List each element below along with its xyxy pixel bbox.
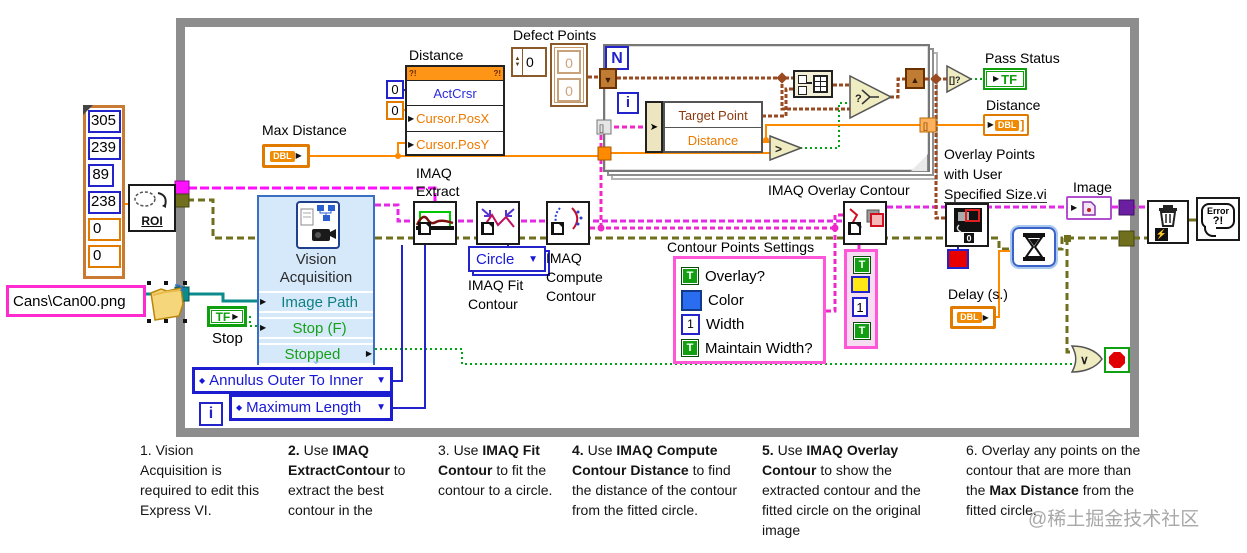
property-node-header: ?! ?!: [407, 67, 503, 81]
prop-glyph-right: ?!: [493, 69, 501, 78]
loop-count-terminal: N: [605, 46, 629, 70]
roi-convert-node[interactable]: ROI: [128, 184, 176, 232]
dbl-type-text: DBL: [957, 312, 982, 323]
posx-constant[interactable]: 0: [386, 101, 404, 120]
defect-points-label: Defect Points: [513, 27, 596, 43]
dbl-type-text: DBL: [270, 151, 295, 162]
va-expand-chevron[interactable]: ⌄: [259, 353, 373, 367]
overlay-points-label-1: Overlay Points: [944, 146, 1035, 162]
defect-points-index[interactable]: ▲ ▼ 0: [511, 47, 547, 77]
settings-row-label: Overlay?: [705, 268, 765, 285]
unbundle-node[interactable]: Target Point Distance: [663, 101, 763, 153]
imaq-extract-contour-node[interactable]: [413, 201, 457, 245]
index-spinner[interactable]: ▲ ▼: [513, 49, 523, 75]
imaq-compute-contour-node[interactable]: [546, 201, 590, 245]
fit-shape-enum[interactable]: Circle ▼: [468, 246, 546, 272]
roi-ellipse-icon: [130, 187, 174, 211]
unbundle-row-distance[interactable]: Distance: [665, 128, 761, 152]
va-row-label: Stop (F): [266, 320, 373, 337]
image-label: Image: [1073, 179, 1112, 195]
va-title-line-2: Acquisition: [259, 269, 373, 286]
svg-text:[]: []: [599, 123, 604, 133]
input-arrow-icon: ▶: [1071, 204, 1077, 212]
roi-value-0[interactable]: 305: [88, 110, 121, 133]
settings-row-label: Color: [708, 292, 744, 309]
svg-text:0: 0: [967, 234, 972, 244]
contour-settings-cluster[interactable]: T Overlay? Color 1 Width T Maintain Widt…: [673, 256, 826, 364]
shift-register-down-icon: ▼: [604, 75, 613, 85]
labview-block-diagram: > ? []? ∨ [] [] 305 239 89 238 0 0 ROI C…: [0, 0, 1247, 553]
settings-row-label: Maintain Width?: [705, 340, 813, 357]
chevron-down-icon[interactable]: ▼: [376, 375, 386, 386]
enum-value: Annulus Outer To Inner: [209, 372, 363, 389]
max-distance-dbl-control[interactable]: DBL ▶: [262, 144, 310, 168]
index-value: 0: [523, 49, 545, 75]
error-bubble-qmarks: ?!: [1203, 216, 1233, 226]
delay-label: Delay (s.): [948, 286, 1008, 302]
overlay-points-vi-node[interactable]: 0: [945, 203, 989, 247]
tf-type-text: TF: [1001, 72, 1017, 87]
array-bracket: ]: [1020, 119, 1024, 131]
max-distance-label: Max Distance: [262, 122, 347, 138]
build-array-node[interactable]: [793, 70, 833, 98]
imaq-overlay-contour-node[interactable]: [843, 201, 887, 245]
array-element-1[interactable]: 0: [557, 78, 581, 102]
distance-array-indicator[interactable]: ▶ DBL ]: [983, 114, 1029, 136]
imaq-dispose-node[interactable]: ⚡: [1147, 200, 1189, 244]
imaq-overlay-contour-label: IMAQ Overlay Contour: [768, 182, 910, 198]
enum-value: Circle: [476, 251, 514, 268]
enum-diamond-icon: ◆: [236, 403, 242, 412]
instruction-2: 2. Use IMAQ ExtractContour to extract th…: [288, 441, 422, 521]
output-arrow-icon: ▶: [983, 314, 989, 322]
va-row-stop[interactable]: ▶ Stop (F): [259, 317, 373, 339]
overlay-color-box[interactable]: [947, 249, 969, 269]
roi-value-1[interactable]: 239: [88, 137, 121, 160]
unbundle-arrow-icon: ➤: [650, 122, 658, 133]
stop-label: Stop: [212, 330, 243, 347]
actcrsr-constant[interactable]: 0: [386, 80, 404, 99]
prop-row-label: ActCrsr: [433, 86, 476, 101]
prop-row-cursorposx[interactable]: ▶ Cursor.PosX: [407, 106, 503, 132]
unbundle-row-target-point[interactable]: Target Point: [665, 103, 761, 128]
chevron-down-icon[interactable]: ▼: [528, 254, 538, 265]
stop-octagon-icon: [1109, 352, 1125, 368]
imaq-compute-label-2: Compute: [546, 269, 603, 285]
va-row-label: Image Path: [266, 294, 373, 311]
build-array-grid-icon: [813, 75, 828, 93]
color-box-yellow[interactable]: [851, 276, 870, 293]
settings-row-maintain[interactable]: T Maintain Width?: [681, 336, 823, 360]
image-indicator[interactable]: ▶: [1066, 196, 1112, 220]
vision-acquisition-icon: [296, 201, 340, 249]
svg-text:[]: []: [923, 121, 928, 131]
array-element-0[interactable]: 0: [557, 50, 581, 74]
dbl-type-text: DBL: [995, 120, 1020, 131]
imaq-fit-label-1: IMAQ Fit: [468, 277, 523, 293]
enum-diamond-icon: ◆: [199, 376, 205, 385]
overlay-points-icon: 0: [947, 205, 987, 245]
settings-row-width[interactable]: 1 Width: [681, 312, 823, 336]
roi-value-2[interactable]: 89: [88, 164, 114, 187]
instruction-3: 3. Use IMAQ Fit Contour to fit the conto…: [438, 441, 576, 501]
shift-register-left[interactable]: ▼: [599, 68, 617, 89]
width-value-box[interactable]: 1: [681, 314, 700, 335]
stop-tf-control[interactable]: TF ▶: [207, 306, 247, 327]
tf-type-text: TF: [216, 310, 231, 324]
loop-iteration-terminal: i: [617, 92, 639, 114]
roi-node-label: ROI: [130, 214, 174, 228]
output-arrow-icon: ▶: [232, 313, 238, 321]
shift-register-up-icon: ▲: [911, 75, 920, 85]
delay-dbl-control[interactable]: DBL ▶: [950, 306, 996, 329]
prop-row-cursorposy[interactable]: ▶ Cursor.PosY: [407, 132, 503, 157]
unbundle-selector[interactable]: ➤: [645, 101, 663, 153]
wait-ms-node[interactable]: [1012, 227, 1056, 267]
roi-value-5[interactable]: 0: [88, 245, 121, 268]
instruction-1: 1. Vision Acquisition is required to edi…: [140, 441, 260, 521]
overlay-points-label-3: Specified Size.vi: [944, 186, 1047, 203]
enum-value: Maximum Length: [246, 399, 361, 416]
pass-status-label: Pass Status: [985, 50, 1060, 66]
imaq-extract-label-2: Extract: [416, 183, 460, 199]
width-value-box[interactable]: 1: [852, 297, 868, 317]
svg-text:>: >: [775, 142, 782, 156]
settings-row-overlay[interactable]: T Overlay?: [681, 264, 823, 288]
settings-row-label: Width: [706, 316, 744, 333]
simple-error-handler-node[interactable]: Error ?!: [1196, 197, 1240, 241]
shift-register-right[interactable]: ▲: [905, 68, 925, 89]
overlay-points-label-2: with User: [944, 166, 1002, 182]
input-arrow-icon: ▶: [408, 141, 414, 149]
color-box[interactable]: [681, 290, 702, 311]
output-arrow-icon: ▶: [296, 152, 302, 160]
contour-mode-enum[interactable]: ◆ Annulus Outer To Inner ▼: [192, 367, 393, 394]
pass-status-indicator[interactable]: ▶ TF: [983, 68, 1027, 90]
length-mode-enum[interactable]: ◆ Maximum Length ▼: [229, 394, 393, 421]
vision-acquisition-vi[interactable]: Vision Acquisition ▶ Image Path ▶ Stop (…: [257, 195, 375, 365]
loop-stop-terminal[interactable]: [1104, 347, 1130, 373]
prop-row-label: Cursor.PosX: [416, 111, 489, 126]
imaq-compute-label-3: Contour: [546, 288, 596, 304]
bool-true-box[interactable]: T: [681, 339, 699, 357]
instruction-5: 5. Use IMAQ Overlay Contour to show the …: [762, 441, 946, 540]
prop-row-actcrsr[interactable]: ActCrsr: [407, 81, 503, 106]
bool-true-box[interactable]: T: [853, 256, 871, 274]
defect-points-array[interactable]: 0 0: [550, 43, 588, 107]
chevron-down-icon[interactable]: ▼: [376, 402, 386, 413]
distance-out-label: Distance: [986, 97, 1040, 113]
bool-true-box[interactable]: T: [853, 322, 871, 340]
va-row-image-path[interactable]: ▶ Image Path: [259, 291, 373, 313]
contour-settings-title: Contour Points Settings: [667, 239, 814, 255]
roi-value-4[interactable]: 0: [88, 218, 121, 241]
prop-glyph-left: ?!: [409, 69, 417, 78]
trash-icon: [1156, 204, 1182, 228]
input-arrow-icon: ▶: [993, 75, 999, 83]
bool-true-box[interactable]: T: [681, 267, 699, 285]
instruction-4: 4. Use IMAQ Compute Contour Distance to …: [572, 441, 742, 521]
imaq-compute-label-1: IMAQ: [546, 250, 582, 266]
imaq-fit-contour-node[interactable]: [476, 201, 520, 245]
prop-row-label: Cursor.PosY: [416, 137, 489, 152]
path-constant[interactable]: Cans\Can00.png: [6, 285, 146, 317]
overlay-settings-constant[interactable]: T 1 T: [844, 249, 878, 349]
image-file-icon: [1081, 201, 1097, 216]
while-iteration-terminal: i: [199, 402, 223, 426]
input-arrow-icon: ▶: [408, 115, 414, 123]
va-title-line-1: Vision: [259, 251, 373, 268]
folder-icon[interactable]: [147, 281, 187, 323]
svg-text:?: ?: [855, 93, 862, 105]
bubble-tail: [1204, 226, 1216, 237]
hourglass-icon: [1021, 232, 1047, 262]
svg-text:[]?: []?: [949, 75, 961, 85]
imaq-fit-label-2: Contour: [468, 296, 518, 312]
svg-text:∨: ∨: [1080, 353, 1089, 367]
property-node[interactable]: ?! ?! ActCrsr ▶ Cursor.PosX ▶ Cursor.Pos…: [405, 65, 505, 156]
input-arrow-icon: ▶: [988, 121, 994, 129]
path-constant-value: Cans\Can00.png: [9, 293, 126, 310]
property-node-label: Distance: [409, 47, 463, 63]
roi-value-3[interactable]: 238: [88, 191, 121, 214]
imaq-extract-label-1: IMAQ: [416, 165, 452, 181]
settings-row-color[interactable]: Color: [681, 288, 823, 312]
watermark: @稀土掘金技术社区: [1028, 504, 1199, 531]
spinner-down-icon[interactable]: ▼: [515, 62, 521, 68]
dispose-bolt-icon: ⚡: [1155, 228, 1168, 241]
